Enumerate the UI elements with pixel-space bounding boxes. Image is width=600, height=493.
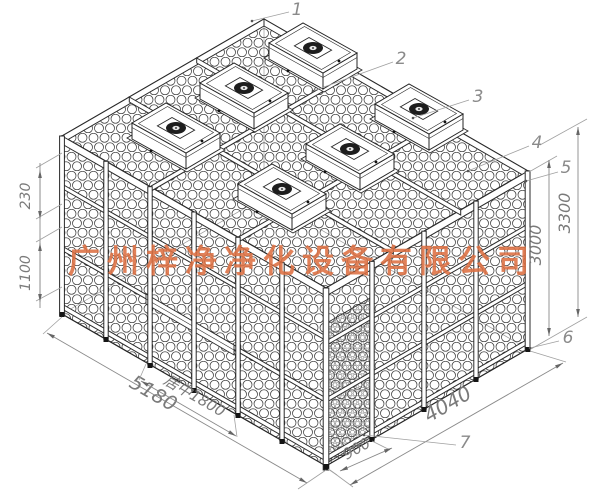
callout-label-4: 4 [532,133,543,153]
callout-label-6: 6 [563,328,574,348]
callout-label-2: 2 [396,49,407,69]
dim-label-1100: 1100 [18,255,34,291]
callout-label-3: 3 [473,87,484,107]
front-corner-post [323,288,329,470]
technical-drawing: 230 1100 3300 3000 5180 [0,0,600,493]
company-watermark: 广州梓净净化设备有限公司 [68,242,536,280]
callout-1: 1 [251,0,303,22]
callout-label-1: 1 [292,0,303,20]
dim-label-3300: 3300 [555,193,574,234]
callout-label-5: 5 [561,158,572,178]
cad-drawing-canvas: 230 1100 3300 3000 5180 [0,0,600,493]
dim-label-230: 230 [18,183,34,210]
callout-label-7: 7 [460,433,471,453]
